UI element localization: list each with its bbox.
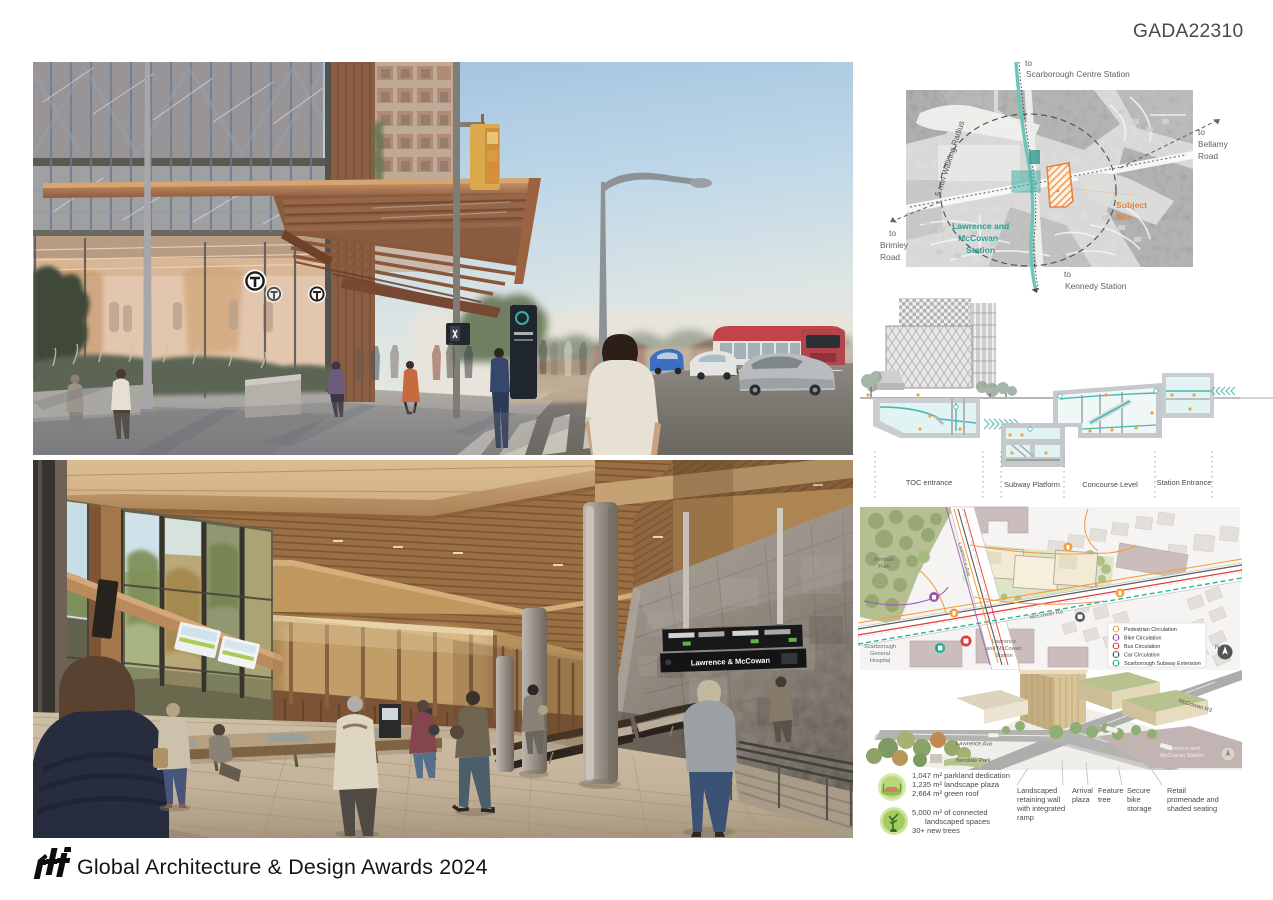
svg-text:and McCowan: and McCowan <box>986 646 1022 652</box>
svg-text:Station: Station <box>995 653 1012 659</box>
svg-text:Site: Site <box>1116 212 1132 222</box>
svg-text:Bendale Park: Bendale Park <box>956 758 991 764</box>
svg-text:Lawrence: Lawrence <box>992 639 1016 645</box>
svg-text:Bendale: Bendale <box>874 557 895 563</box>
svg-text:Road: Road <box>880 252 900 262</box>
svg-text:to: to <box>1064 269 1071 279</box>
svg-text:Brimley: Brimley <box>880 240 909 250</box>
svg-text:Scarborough: Scarborough <box>864 644 896 650</box>
svg-text:TOC entrance: TOC entrance <box>906 478 952 487</box>
svg-text:Bike Circulation: Bike Circulation <box>1124 636 1161 642</box>
svg-text:Scarborough Subway Extension: Scarborough Subway Extension <box>1124 661 1201 667</box>
svg-text:Subject: Subject <box>1116 200 1147 210</box>
svg-text:Bus Circulation: Bus Circulation <box>1124 644 1160 650</box>
svg-text:Car Circulation: Car Circulation <box>1124 653 1160 659</box>
svg-text:Lawrence Ave: Lawrence Ave <box>956 741 992 748</box>
svg-text:to: to <box>889 228 896 238</box>
svg-text:Road: Road <box>1198 151 1218 161</box>
svg-text:N: N <box>1215 645 1219 651</box>
svg-text:Station Entrance: Station Entrance <box>1157 478 1212 487</box>
svg-text:Pedestrian Circulation: Pedestrian Circulation <box>1124 627 1177 633</box>
svg-text:Kennedy Station: Kennedy Station <box>1065 281 1127 291</box>
svg-text:Concourse Level: Concourse Level <box>1082 480 1138 489</box>
svg-text:General: General <box>870 651 890 657</box>
svg-text:Hospital: Hospital <box>870 658 890 664</box>
svg-text:Scarborough Centre Station: Scarborough Centre Station <box>1026 69 1130 79</box>
svg-text:Bellamy: Bellamy <box>1198 139 1229 149</box>
svg-text:Lawrence and: Lawrence and <box>952 221 1009 231</box>
svg-text:McCowan: McCowan <box>958 233 998 243</box>
svg-text:Park: Park <box>878 564 890 570</box>
svg-text:to: to <box>1198 127 1205 137</box>
svg-text:Subway Platform: Subway Platform <box>1004 480 1060 489</box>
svg-text:to: to <box>1025 58 1032 68</box>
svg-text:Station: Station <box>966 245 995 255</box>
